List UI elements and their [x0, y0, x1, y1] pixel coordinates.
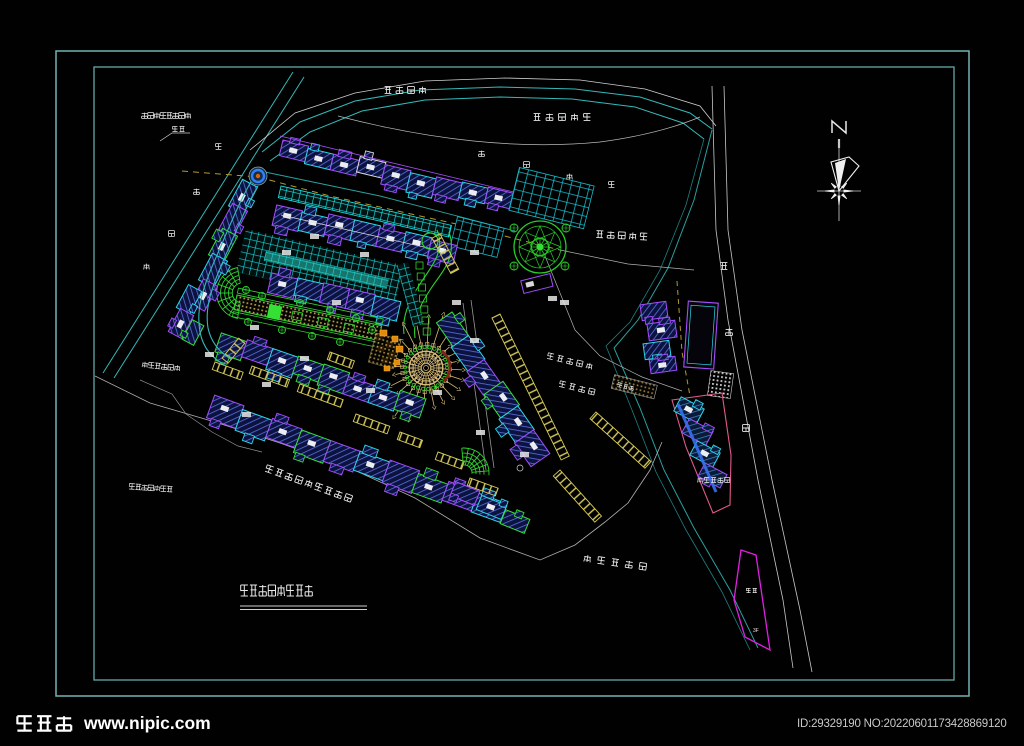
svg-text:3F: 3F — [753, 628, 759, 634]
